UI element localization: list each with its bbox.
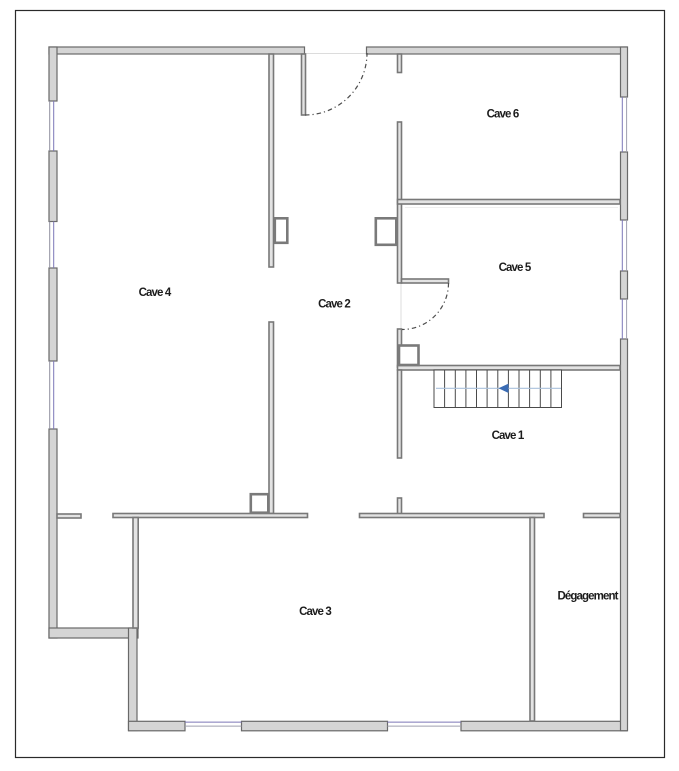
svg-text:Cave 4: Cave 4	[139, 287, 172, 299]
svg-text:Cave 5: Cave 5	[499, 262, 532, 274]
svg-text:Cave 2: Cave 2	[318, 299, 350, 311]
svg-text:Cave 3: Cave 3	[299, 606, 331, 618]
svg-text:Cave 6: Cave 6	[487, 109, 519, 121]
svg-text:Cave 1: Cave 1	[492, 430, 525, 442]
svg-text:Dégagement: Dégagement	[557, 591, 618, 603]
